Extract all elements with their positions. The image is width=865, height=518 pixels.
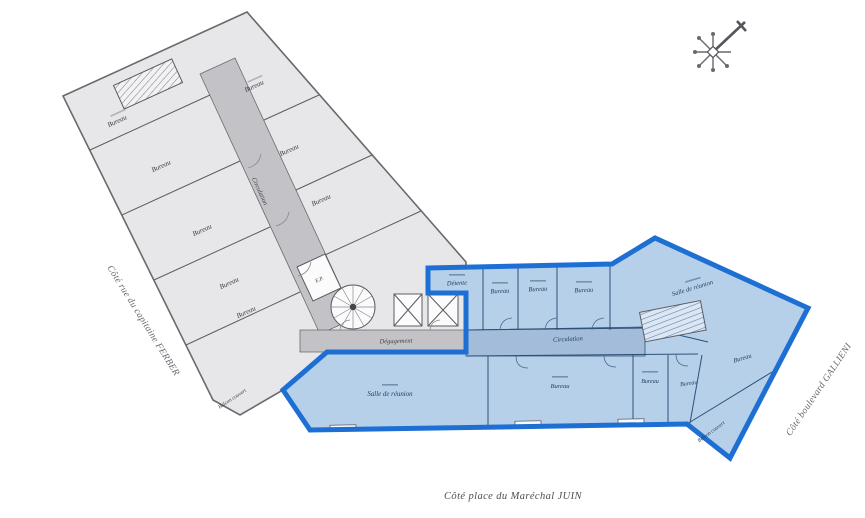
room-label: Bureau bbox=[574, 287, 594, 295]
elevator-icon bbox=[394, 294, 422, 326]
room-label: Bureau bbox=[551, 383, 571, 390]
room-label: Salle de réunion bbox=[367, 391, 413, 398]
corridor-label: Dégagement bbox=[378, 338, 412, 346]
floor-plan-drawing: Bureau Bureau Bureau Bureau Bureau Burea… bbox=[0, 0, 865, 518]
floor-plan-page: Bureau Bureau Bureau Bureau Bureau Burea… bbox=[0, 0, 865, 518]
street-label-bottom: Côté place du Maréchal JUIN bbox=[444, 491, 583, 502]
room-label: Bureau bbox=[528, 286, 548, 294]
spiral-staircase-icon bbox=[331, 285, 375, 329]
room-label: Bureau bbox=[641, 379, 658, 385]
elevator-icon bbox=[428, 294, 458, 326]
room-label: Détente bbox=[446, 280, 468, 288]
street-label-right: Côté boulevard GALLIENI bbox=[785, 341, 855, 438]
compass-north-icon bbox=[693, 21, 746, 72]
room-label: Bureau bbox=[490, 288, 510, 296]
